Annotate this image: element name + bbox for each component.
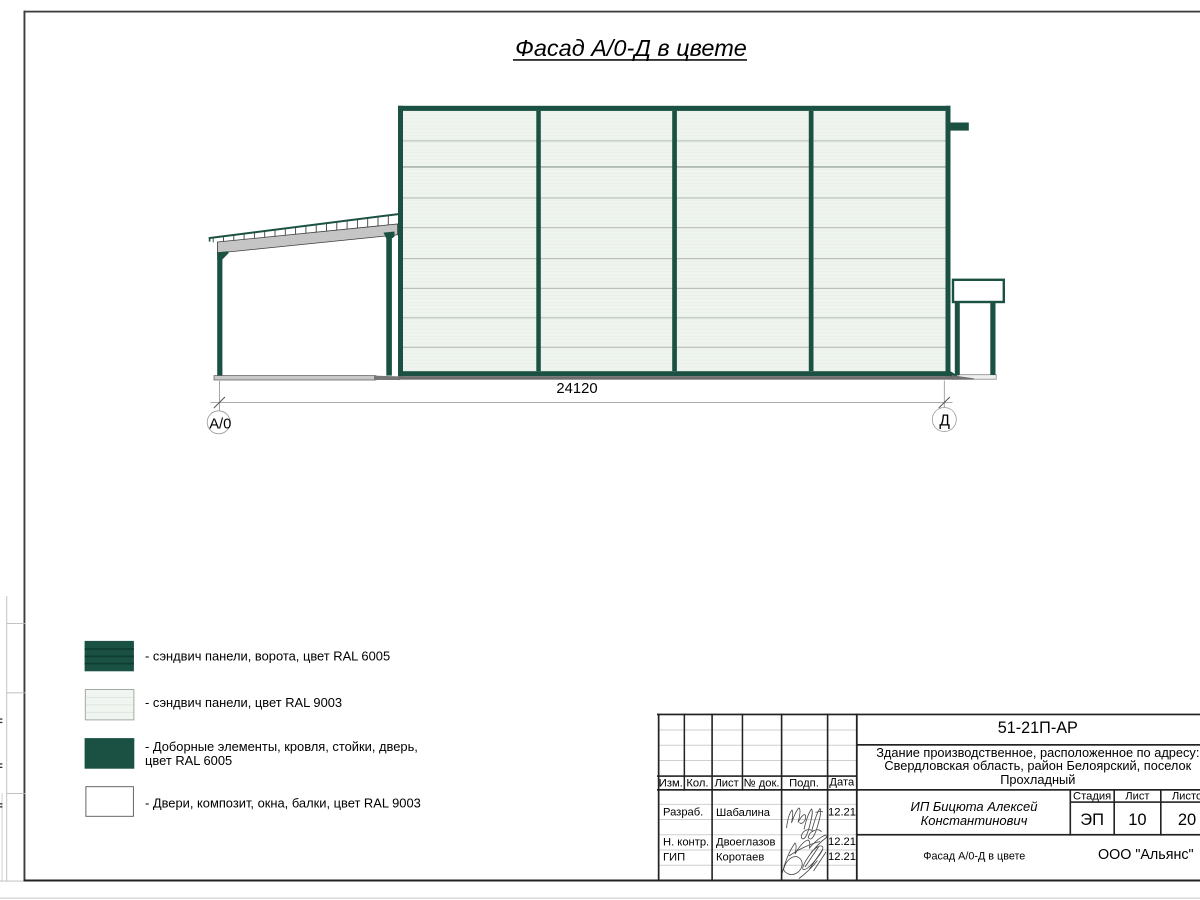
svg-text:Коротаев: Коротаев (716, 851, 764, 863)
svg-text:Двоеглазов: Двоеглазов (716, 836, 776, 848)
svg-text:Н. контр.: Н. контр. (663, 836, 709, 848)
svg-text:Дата: Дата (829, 777, 855, 789)
svg-text:- Доборные элементы, кровля, с: - Доборные элементы, кровля, стойки, две… (145, 739, 418, 754)
svg-text:Шабалина: Шабалина (716, 807, 771, 819)
svg-text:Разраб.: Разраб. (663, 806, 703, 818)
svg-text:Стадия: Стадия (1073, 790, 1111, 802)
svg-text:12.21: 12.21 (828, 851, 856, 863)
svg-text:Константинович: Константинович (921, 813, 1028, 828)
svg-text:цвет RAL 6005: цвет RAL 6005 (145, 753, 232, 768)
svg-text:Изм.: Изм. (659, 778, 683, 790)
svg-text:ИП Бицюта Алексей: ИП Бицюта Алексей (911, 799, 1038, 814)
svg-text:Лист: Лист (714, 778, 738, 790)
svg-text:Лист: Лист (1125, 790, 1149, 802)
svg-text:Д: Д (939, 413, 950, 430)
svg-text:Подп.: Подп. (789, 778, 819, 790)
svg-text:- сэндвич панели, цвет RAL 900: - сэндвич панели, цвет RAL 9003 (145, 695, 342, 710)
svg-text:Фасад А/0-Д в цвете: Фасад А/0-Д в цвете (515, 35, 747, 61)
svg-text:А/0: А/0 (209, 416, 231, 432)
svg-text:Фасад А/0-Д в цвете: Фасад А/0-Д в цвете (923, 850, 1025, 862)
svg-text:№ док.: № док. (744, 778, 780, 790)
svg-text:12.21: 12.21 (828, 836, 856, 848)
svg-text:10: 10 (1128, 811, 1146, 829)
svg-text:24120: 24120 (556, 381, 597, 397)
svg-text:Листов: Листов (1172, 790, 1200, 802)
svg-text:- сэндвич панели, ворота, цвет: - сэндвич панели, ворота, цвет RAL 6005 (145, 649, 390, 664)
svg-text:Прохладный: Прохладный (1000, 772, 1075, 787)
svg-text:51-21П-АР: 51-21П-АР (998, 719, 1078, 737)
svg-text:Свердловская область, район Бе: Свердловская область, район Белоярский, … (884, 758, 1191, 773)
svg-text:20: 20 (1178, 811, 1196, 829)
svg-text:ЭП: ЭП (1080, 811, 1104, 829)
svg-text:ГИП: ГИП (663, 851, 685, 863)
svg-text:12.21: 12.21 (828, 806, 856, 818)
svg-text:- Двери, композит, окна, балки: - Двери, композит, окна, балки, цвет RAL… (145, 796, 421, 811)
svg-text:ООО "Альянс": ООО "Альянс" (1098, 847, 1194, 863)
svg-text:Кол.: Кол. (686, 778, 708, 790)
